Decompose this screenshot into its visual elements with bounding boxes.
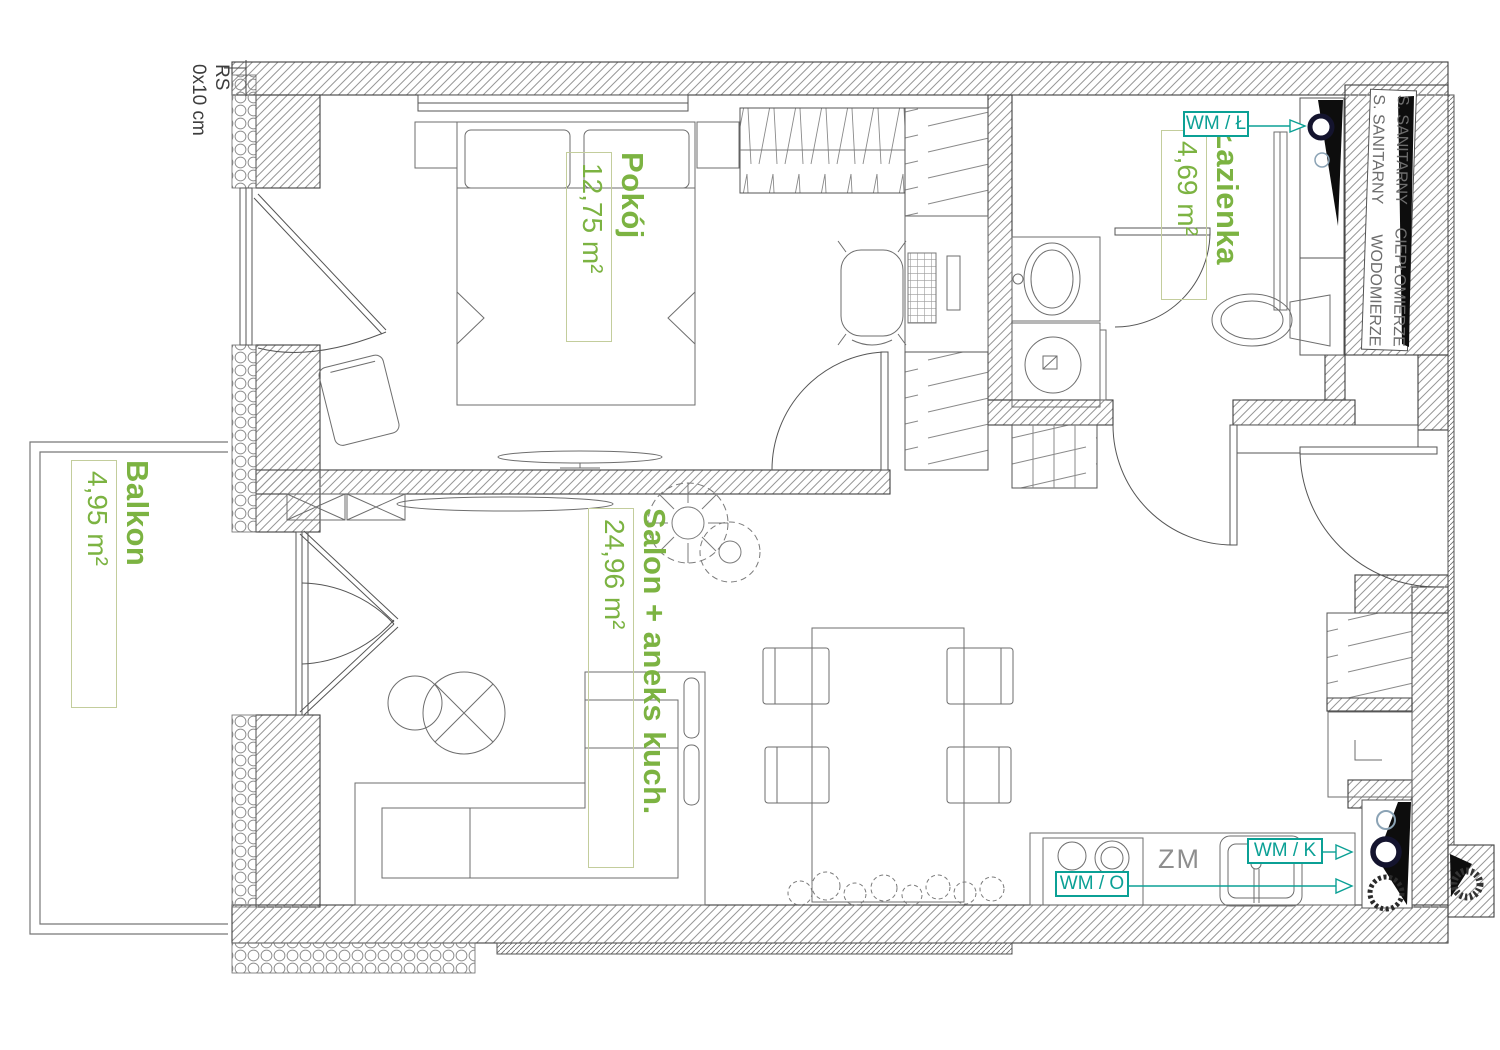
room-area: 12,75 m² — [566, 152, 612, 342]
desk-chair — [838, 241, 906, 345]
bathroom-sink — [1012, 237, 1100, 321]
balcony-door-leaf-2 — [300, 624, 398, 715]
doors — [254, 194, 1437, 715]
shaft-text: S. SANITARNY CIEPŁOMIERZE S. SANITARNY W… — [1362, 94, 1414, 347]
closet-bottom — [905, 352, 988, 470]
door-leaf-bedroom — [881, 352, 888, 470]
washing-machine — [1012, 323, 1106, 407]
room-name: Salon + aneks kuch. — [636, 508, 672, 868]
meter-label-wm-k: WM / K — [1247, 838, 1323, 864]
armchair — [317, 353, 400, 447]
balcony-door-arc-1 — [302, 620, 394, 664]
room-label-salon: Salon + aneks kuch. 24,96 m² — [588, 508, 672, 868]
tv-bedroom — [498, 451, 662, 468]
room-name: Łazienka — [1209, 130, 1245, 300]
balcony-door-leaf-1 — [300, 531, 398, 622]
room-name: Pokój — [614, 152, 650, 342]
room-label-balkon: Balkon 4,95 m² — [71, 460, 155, 708]
room-area: 4,95 m² — [71, 460, 117, 708]
window-leaf-bedroom — [254, 194, 386, 334]
coffee-tables — [388, 672, 505, 754]
note-line2: 0x10 cm — [186, 64, 209, 136]
kitchen — [1030, 613, 1412, 906]
closet-top — [905, 108, 988, 216]
plants-row — [788, 872, 1004, 905]
note-line1: RS — [209, 64, 232, 136]
door-leaf-bathroom — [1230, 425, 1237, 545]
tv-sideboard — [397, 497, 613, 511]
door-arc-bathroom — [1113, 425, 1233, 545]
dining-set — [763, 628, 1013, 902]
room-label-pokoj: Pokój 12,75 m² — [566, 152, 650, 342]
cold-water-label: ZM — [1158, 844, 1201, 875]
balcony-door-arc-2 — [302, 583, 394, 624]
shaft-line: S. SANITARNY WODOMIERZE — [1362, 94, 1390, 346]
nightstand-left — [415, 122, 457, 168]
door-arc-entrance — [1300, 450, 1437, 587]
tall-cabinet — [1327, 613, 1412, 698]
note-rs: RS 0x10 cm — [186, 64, 232, 136]
room-name: Balkon — [119, 460, 155, 708]
keyboard — [908, 253, 936, 323]
radiator — [1274, 132, 1287, 310]
meter-label-wm-l: WM / Ł — [1183, 111, 1249, 137]
door-arc-bedroom — [772, 352, 883, 470]
floor-plan: Pokój 12,75 m² Łazienka 4,69 m² Salon + … — [0, 0, 1500, 1050]
nightstand-right — [697, 122, 739, 168]
meter-label-wm-o: WM / O — [1055, 871, 1129, 897]
door-leaf-entrance — [1300, 447, 1437, 454]
shaft-line: S. SANITARNY CIEPŁOMIERZE — [1386, 95, 1414, 347]
room-area: 4,69 m² — [1161, 130, 1207, 300]
floorplan-drawing — [0, 0, 1500, 1050]
room-area: 24,96 m² — [588, 508, 634, 868]
room-label-lazienka: Łazienka 4,69 m² — [1161, 130, 1245, 300]
